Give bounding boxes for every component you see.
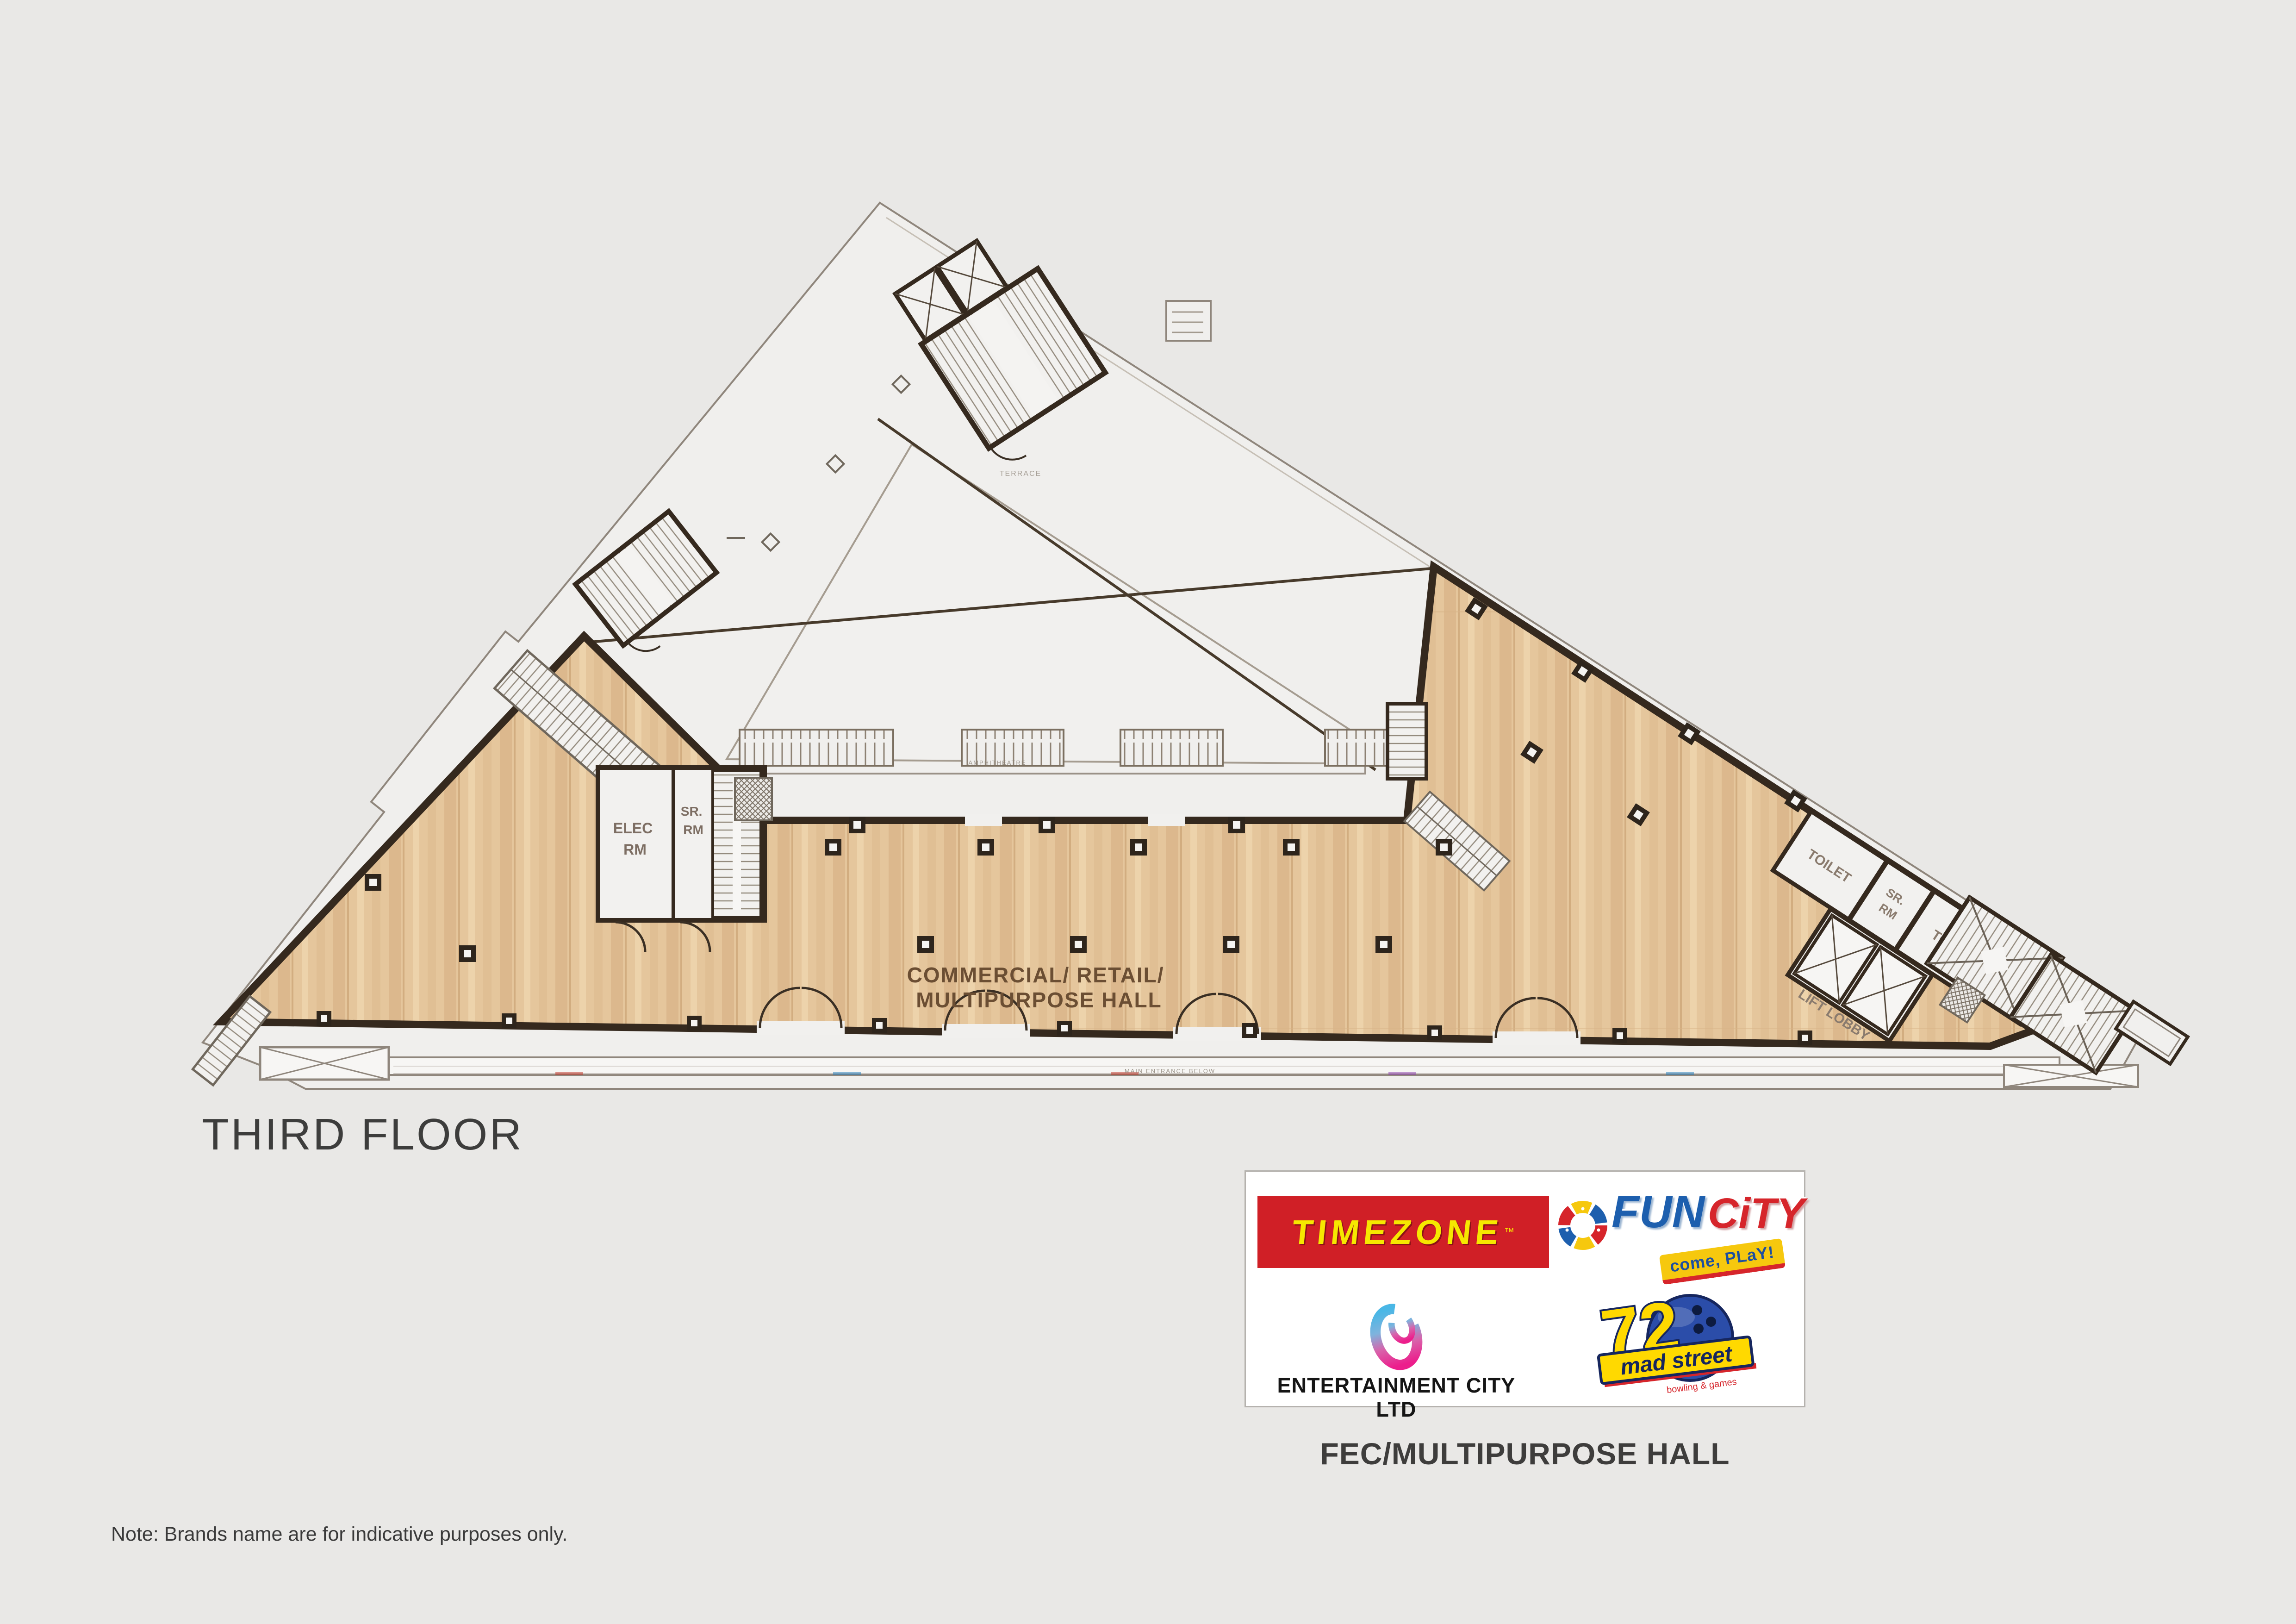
stair-id-box — [1166, 301, 1211, 341]
entertainment-city-logo: ENTERTAINMENT CITY LTD — [1255, 1300, 1537, 1404]
come-play-tagline: come, PLaY! — [1659, 1238, 1786, 1285]
note-text: Note: Brands name are for indicative pur… — [111, 1523, 567, 1546]
annotation-walkway: AMPHITHEATRE — [969, 759, 1027, 766]
annotation-court: TERRACE — [1000, 470, 1041, 478]
entertainment-city-wordmark: ENTERTAINMENT CITY LTD — [1255, 1374, 1537, 1422]
mad-street-logo: 72 mad street bowling & games — [1593, 1285, 1760, 1405]
wing-notch-stair — [1388, 704, 1426, 779]
floor-plan: ELEC RM SR. RM — [0, 0, 2296, 1624]
timezone-wordmark: TIMEZONE — [1290, 1212, 1504, 1252]
fun-city-logo: FUN CiTY come, PLaY! — [1555, 1183, 1796, 1285]
page: ELEC RM SR. RM — [0, 0, 2296, 1624]
page-title: THIRD FLOOR — [202, 1109, 523, 1160]
brand-box: TIMEZONE™ FUN CiTY come, PLaY! — [1244, 1170, 1805, 1407]
timezone-logo: TIMEZONE™ — [1257, 1196, 1549, 1268]
annotation-entrance: MAIN ENTRANCE BELOW — [1125, 1068, 1215, 1074]
swirl-icon — [1366, 1302, 1426, 1372]
city-wordmark: CiTY — [1708, 1189, 1805, 1238]
fun-wordmark: FUN — [1612, 1186, 1705, 1238]
shaft-box — [735, 778, 772, 820]
legend-caption: FEC/MULTIPURPOSE HALL — [1244, 1436, 1805, 1471]
trademark-symbol: ™ — [1504, 1226, 1514, 1238]
pinwheel-icon — [1555, 1198, 1611, 1253]
